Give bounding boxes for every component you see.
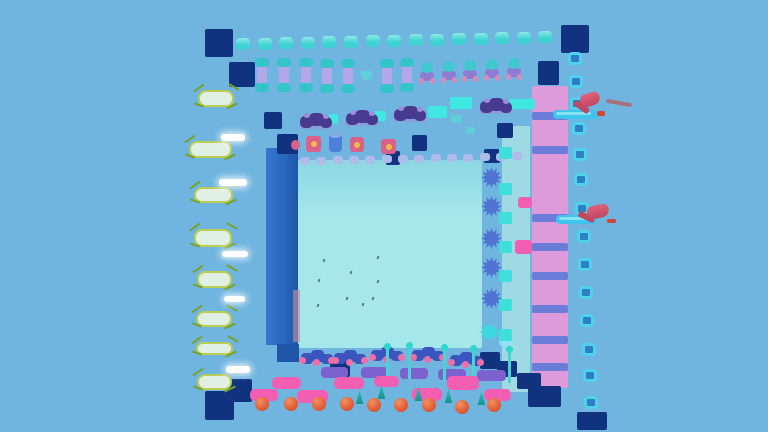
pillar-cap-bottom (255, 83, 269, 92)
vine-tendril (190, 223, 201, 232)
vine-platform (194, 187, 233, 203)
navy-block (205, 391, 234, 420)
ladder-rung (532, 363, 568, 371)
pillar-obstacle (257, 61, 267, 89)
spinner-bar (400, 368, 428, 379)
hammer-debris (607, 219, 616, 223)
dice-dot (311, 141, 317, 147)
cyan-pad (428, 106, 447, 118)
spider-highlight (398, 106, 404, 111)
vine-tendril (224, 284, 236, 291)
pillar-cap-bottom (341, 84, 355, 93)
dice-block (306, 136, 321, 152)
mushroom-foot (462, 76, 467, 82)
hammer-splash (553, 110, 598, 119)
navy-block (528, 386, 561, 407)
tree-cone (377, 385, 386, 399)
mushroom-foot (495, 75, 500, 81)
flower-hazard (412, 347, 444, 363)
cyan-bump (301, 37, 315, 49)
checkpoint-tile (577, 230, 591, 243)
cyan-bump (517, 32, 531, 44)
navy-block (577, 412, 607, 430)
lavender-bump (431, 154, 441, 162)
lavender-bump (300, 157, 310, 165)
orange-ball (255, 397, 269, 411)
vine-tendril (224, 154, 236, 161)
vine-tendril (192, 305, 203, 314)
cyan-bump (409, 34, 423, 46)
glow-bar (224, 296, 245, 302)
ladder-rung (532, 272, 568, 280)
vine-tendril (193, 368, 204, 377)
vine-tendril (226, 264, 237, 272)
pillar-cap-top (299, 58, 313, 67)
flower-berry (424, 356, 431, 363)
vine-tendril (192, 336, 203, 345)
spider-highlight (417, 107, 423, 112)
spider-cluster (393, 105, 426, 123)
pillar-cap-top (277, 58, 291, 67)
cyan-tile (499, 329, 512, 341)
cyan-pad (509, 99, 535, 109)
lavender-bump (398, 155, 408, 163)
pin-stem (508, 352, 511, 383)
pink-platform (374, 376, 399, 387)
vine-tendril (194, 84, 205, 93)
mushroom-head (421, 62, 433, 73)
mushroom-head (486, 59, 498, 70)
spider-highlight (484, 98, 490, 103)
flower-hazard (334, 350, 366, 366)
ladder-rung (532, 146, 568, 154)
orange-ball (455, 400, 469, 414)
pillar-cap-top (255, 58, 269, 67)
pillar-obstacle (322, 62, 332, 90)
pin-stem (443, 350, 446, 381)
vine-platform (196, 342, 233, 355)
dice-block (381, 139, 396, 154)
vine-tendril (185, 135, 196, 144)
orange-ball (367, 398, 381, 412)
spider-cluster (299, 112, 332, 130)
cyan-bump (344, 36, 358, 48)
pin-knob (406, 342, 413, 349)
pink-dot (291, 140, 300, 150)
cyan-bump (495, 32, 509, 44)
pin-knob (384, 343, 391, 350)
vine-tendril (225, 199, 237, 206)
checkpoint-tile (584, 396, 598, 409)
cyan-bump (387, 35, 401, 47)
cyan-bump (322, 36, 336, 48)
pillar-cap-bottom (299, 83, 313, 92)
center-platform (297, 160, 482, 348)
cyan-tile (499, 147, 512, 159)
vine-tendril (193, 385, 203, 390)
lavender-bump (316, 157, 326, 165)
vine-platform (189, 141, 232, 158)
pillar-cap-bottom (320, 84, 334, 93)
vine-tendril (192, 322, 202, 327)
mushroom-foot (419, 78, 424, 84)
pink-platform (334, 377, 364, 389)
flag-pin (506, 346, 513, 383)
pillar-cap-top (320, 59, 334, 68)
vine-platform (196, 311, 232, 327)
flower-berry (462, 361, 469, 368)
vine-tendril (225, 351, 237, 358)
tower-shadow (293, 290, 300, 342)
tree-cone (444, 389, 453, 403)
flower-berry (448, 359, 455, 366)
cyan-tile (499, 270, 512, 282)
pillar-cap-bottom (277, 83, 291, 92)
vine-tendril (226, 103, 238, 110)
glow-bar (221, 134, 245, 141)
orange-ball (340, 397, 354, 411)
navy-block (229, 62, 255, 87)
cylinder-block (329, 133, 342, 152)
cyan-bump (430, 34, 444, 46)
lavender-bump (382, 155, 392, 163)
spider-highlight (304, 113, 310, 118)
lavender-bump (512, 152, 522, 160)
pink-tab (515, 240, 532, 254)
checkpoint-tile (568, 52, 582, 65)
flower-berry (369, 354, 376, 361)
cyan-bump (538, 31, 552, 43)
cyan-bump (366, 35, 380, 47)
gear-obstacle-cyan (479, 323, 500, 341)
vine-tendril (192, 350, 202, 355)
vine-tendril (226, 304, 237, 312)
pillar-cap-top (380, 59, 394, 68)
checkpoint-tile (583, 369, 597, 382)
dice-dot (386, 144, 392, 150)
cyan-tile (499, 241, 512, 253)
navy-block (497, 123, 513, 138)
checkpoint-tile (578, 258, 592, 271)
lavender-bump (480, 153, 490, 161)
checkpoint-tile (582, 343, 596, 356)
pillar-obstacle (402, 61, 412, 89)
checkpoint-tile (573, 148, 587, 161)
curve-piece (361, 71, 372, 80)
navy-block (205, 29, 233, 57)
mushroom-head (464, 60, 476, 71)
glow-bar (219, 179, 247, 186)
lavender-bump (447, 154, 457, 162)
pin-stem (408, 348, 411, 379)
cyan-pad (466, 127, 475, 134)
cyan-bump (279, 37, 293, 49)
hammer-debris-streak (606, 99, 632, 107)
vine-tendril (193, 283, 203, 288)
mushroom-bumper (485, 59, 499, 83)
flower-hazard (450, 352, 482, 368)
mushroom-bumper (420, 62, 434, 86)
orange-ball (487, 398, 501, 412)
mushroom-head (508, 58, 520, 69)
checkpoint-tile (569, 75, 583, 88)
pillar-cap-bottom (380, 84, 394, 93)
flower-berry (398, 354, 405, 361)
pillar-obstacle (279, 61, 289, 89)
flower-hazard (301, 350, 333, 366)
cyan-pad (450, 97, 472, 109)
spider-highlight (503, 99, 509, 104)
cyan-bump (474, 33, 488, 45)
cyan-tile (499, 212, 512, 224)
mushroom-bumper (463, 60, 477, 84)
lavender-bump (463, 154, 473, 162)
lavender-bump (365, 156, 375, 164)
vine-platform (197, 271, 232, 288)
pillar-obstacle (343, 62, 353, 90)
orange-ball (394, 398, 408, 412)
dice-dot (354, 142, 360, 148)
flower-berry (332, 357, 339, 364)
hammer-debris (597, 111, 605, 116)
game-viewport[interactable] (0, 0, 768, 432)
orange-ball (422, 398, 436, 412)
vine-platform (198, 90, 234, 107)
spinner-bar (477, 370, 506, 381)
pillar-cap-top (400, 58, 414, 67)
mushroom-foot (484, 75, 489, 81)
flower-berry (346, 359, 353, 366)
spider-highlight (369, 111, 375, 116)
blue-tower-step (277, 344, 299, 362)
pillar-obstacle (382, 62, 392, 90)
pin-knob (470, 345, 477, 352)
lavender-bump (349, 156, 359, 164)
vine-tendril (227, 335, 238, 343)
pink-platform (447, 376, 479, 390)
navy-block (264, 112, 282, 129)
orange-ball (312, 397, 326, 411)
lavender-bump (414, 155, 424, 163)
flag-pin (406, 342, 413, 379)
mushroom-bumper (442, 61, 456, 85)
flag-pin (384, 343, 391, 380)
flower-berry (361, 357, 368, 364)
glow-bar (222, 251, 248, 257)
pin-knob (506, 346, 513, 353)
navy-block (538, 61, 559, 85)
pillar-obstacle (301, 61, 311, 89)
cyan-bump (236, 38, 250, 50)
vine-tendril (224, 323, 236, 330)
spider-cluster (479, 97, 512, 115)
mushroom-foot (452, 77, 457, 83)
cyan-tile (499, 299, 512, 311)
vine-tendril (224, 243, 236, 250)
cyan-tile (499, 183, 512, 195)
spider-highlight (350, 110, 356, 115)
mushroom-foot (473, 76, 478, 82)
lavender-bump (333, 156, 343, 164)
cylinder-top (329, 131, 342, 138)
cyan-bump (258, 38, 272, 50)
ladder-rung (532, 305, 568, 313)
flag-pin (441, 344, 448, 381)
mushroom-head (443, 61, 455, 72)
pink-platform (272, 377, 301, 389)
vine-tendril (185, 153, 195, 158)
pin-knob (441, 344, 448, 351)
checkpoint-tile (579, 286, 593, 299)
checkpoint-tile (572, 122, 586, 135)
mushroom-foot (506, 74, 511, 80)
mushroom-foot (517, 74, 522, 80)
pillar-cap-top (341, 59, 355, 68)
navy-block (412, 135, 427, 151)
vine-tendril (226, 222, 237, 230)
checkpoint-tile (580, 314, 594, 327)
tree-cone (355, 390, 364, 404)
ladder-rung (532, 336, 568, 344)
mushroom-foot (441, 77, 446, 83)
flower-berry (299, 357, 306, 364)
mushroom-bumper (507, 58, 521, 82)
orange-ball (284, 397, 298, 411)
vine-tendril (194, 102, 204, 107)
ladder-rung (532, 243, 568, 251)
dice-block (350, 137, 364, 152)
checkpoint-tile (574, 173, 588, 186)
vine-tendril (190, 198, 200, 203)
vine-tendril (190, 181, 201, 190)
pink-tab (518, 197, 532, 208)
vine-platform (197, 374, 232, 390)
glow-bar (226, 366, 250, 373)
vine-platform (194, 229, 232, 247)
cyan-pad (451, 115, 462, 123)
navy-block (561, 25, 589, 53)
pillar-cap-bottom (400, 83, 414, 92)
spider-highlight (323, 114, 329, 119)
vine-tendril (193, 265, 204, 274)
flower-berry (477, 359, 484, 366)
flower-berry (313, 359, 320, 366)
mushroom-foot (430, 78, 435, 84)
cyan-bump (452, 33, 466, 45)
vine-tendril (190, 242, 200, 247)
hammer-head (586, 203, 610, 220)
spider-cluster (345, 109, 378, 127)
